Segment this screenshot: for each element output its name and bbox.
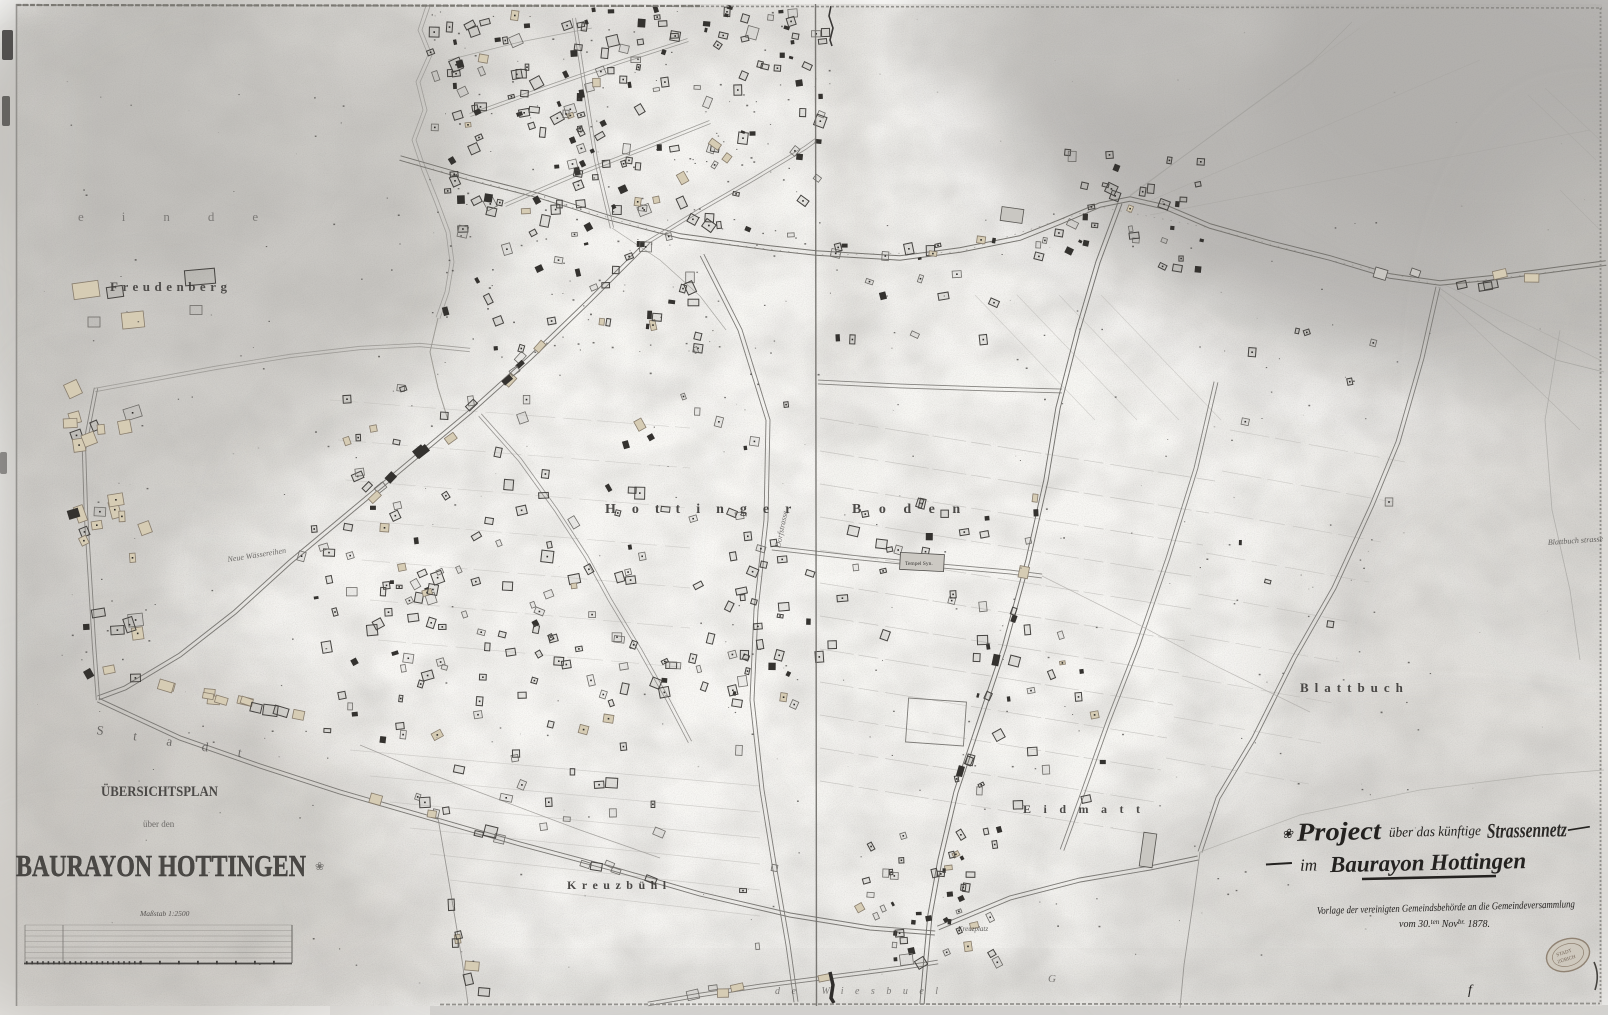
- svg-text:einde: einde: [78, 209, 296, 224]
- svg-text:ÜBERSICHTSPLAN: ÜBERSICHTSPLAN: [101, 783, 218, 800]
- svg-text:Boden: Boden: [852, 502, 978, 517]
- svg-text:Maßstab 1:2500: Maßstab 1:2500: [139, 909, 190, 918]
- svg-text:Hottinger: Hottinger: [605, 502, 807, 517]
- svg-text:G: G: [1048, 973, 1056, 985]
- svg-text:Kreuzplatz: Kreuzplatz: [957, 925, 988, 933]
- svg-text:Freudenberg: Freudenberg: [110, 279, 231, 294]
- svg-text:BAURAYON HOTTINGEN: BAURAYON HOTTINGEN: [16, 848, 306, 883]
- svg-text:Project: Project: [1295, 816, 1382, 847]
- svg-text:Eidmatt: Eidmatt: [1023, 802, 1153, 816]
- svg-text:Strassennetz: Strassennetz: [1487, 817, 1568, 843]
- svg-text:Kreuzbühl: Kreuzbühl: [567, 878, 672, 892]
- svg-text:❀: ❀: [315, 861, 324, 873]
- svg-text:Blattbuch: Blattbuch: [1300, 680, 1409, 695]
- svg-text:de Wiesbuel: de Wiesbuel: [775, 986, 950, 997]
- svg-text:❀: ❀: [1282, 826, 1294, 841]
- svg-text:über das künftige: über das künftige: [1389, 824, 1481, 841]
- svg-text:Tempel Syn.: Tempel Syn.: [905, 561, 933, 567]
- svg-text:im: im: [1300, 855, 1317, 874]
- svg-text:über den: über den: [143, 819, 175, 829]
- svg-text:vom 30.ten Novbr. 1878.: vom 30.ten Novbr. 1878.: [1399, 918, 1490, 930]
- svg-text:Baurayon Hottingen: Baurayon Hottingen: [1329, 848, 1527, 877]
